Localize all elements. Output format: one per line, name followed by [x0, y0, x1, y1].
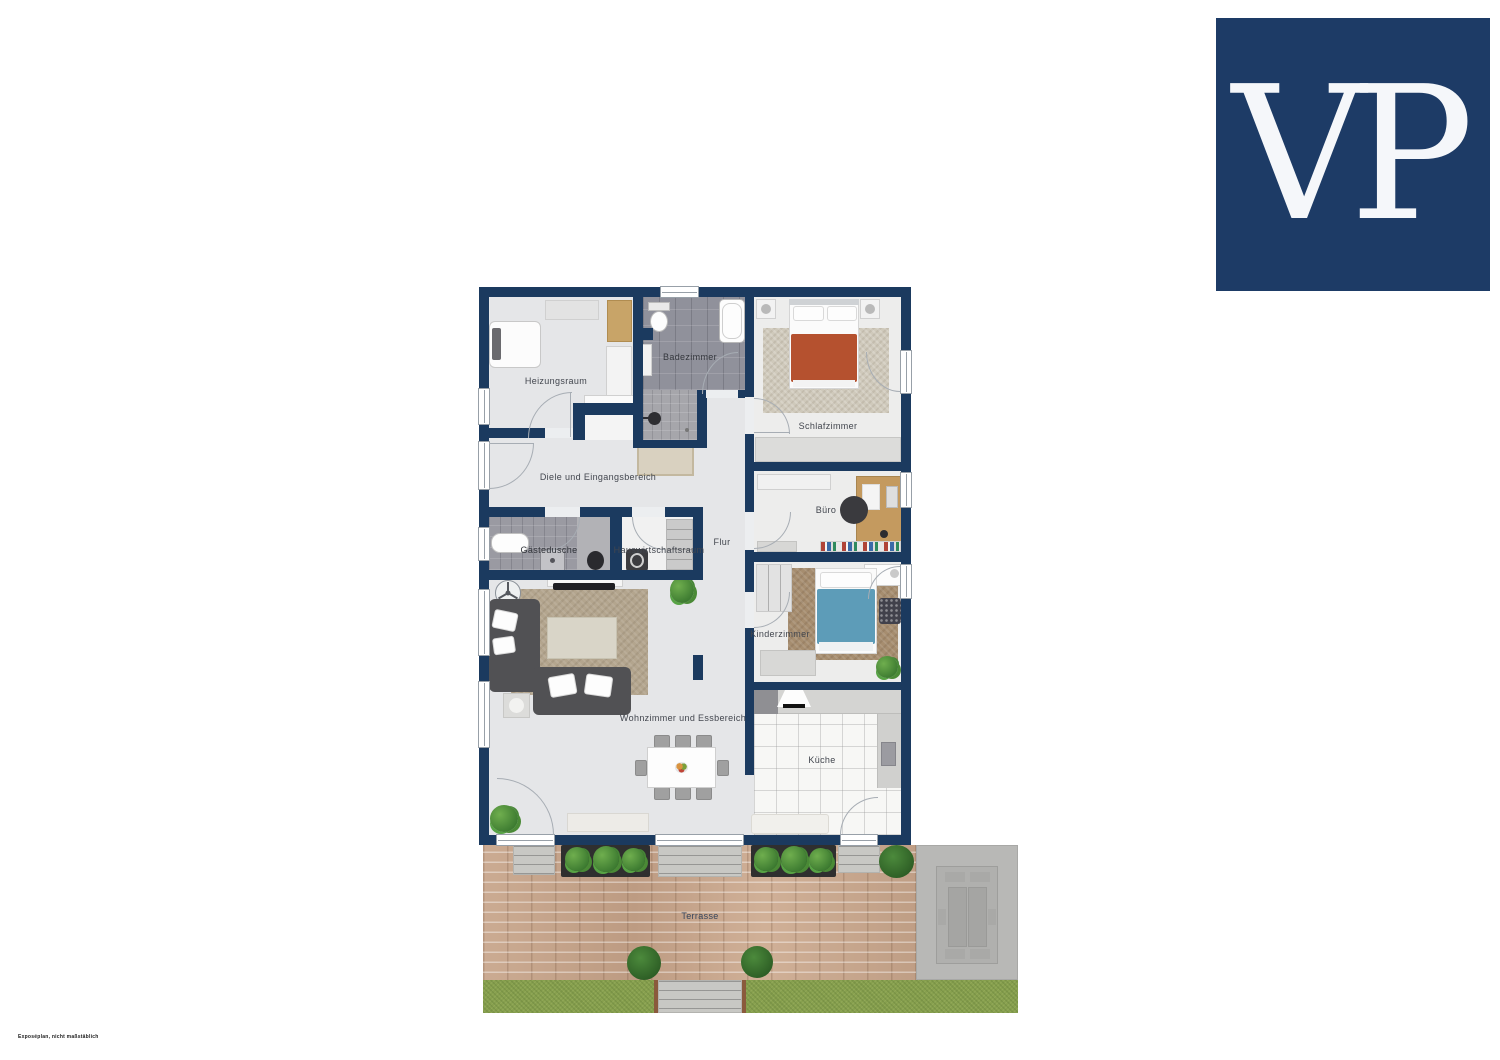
bush-icon [593, 846, 619, 872]
wall [643, 328, 653, 340]
shower-drain [685, 428, 689, 432]
wall [745, 682, 901, 690]
wall [745, 550, 754, 592]
steps-right [838, 845, 880, 873]
office-chair [840, 496, 868, 524]
disclaimer-text: Exposéplan, nicht maßstäblich [18, 1034, 99, 1040]
room-label-wohnzimmer: Wohnzimmer und Essbereich [620, 713, 746, 723]
terrace-door [496, 834, 555, 846]
wall [693, 655, 703, 680]
kids-bench [760, 650, 816, 676]
kids-bed-blanket [817, 589, 875, 644]
window [478, 589, 490, 656]
terrace-bush-icon [741, 946, 773, 978]
wall [745, 434, 754, 512]
kitchen-sink [881, 742, 896, 766]
cooktop-bar [783, 704, 805, 708]
door-leaf [570, 392, 571, 437]
door-opening [745, 397, 754, 434]
patio-chair [945, 872, 965, 882]
planter-left [561, 845, 650, 877]
room-label-kueche: Küche [808, 755, 835, 765]
window [900, 564, 912, 599]
bush-icon [754, 847, 778, 871]
wall [693, 507, 703, 580]
steps-left [513, 845, 555, 875]
guest-shower-drain [550, 558, 555, 563]
vp-logo: V P [1216, 18, 1490, 291]
wall [754, 552, 901, 562]
bookshelf [820, 541, 901, 552]
bed-headboard [789, 299, 859, 305]
room-label-kinderzimmer: Kinderzimmer [750, 629, 810, 639]
wall [479, 507, 545, 517]
desk-item [880, 530, 888, 538]
room-label-heizungsraum: Heizungsraum [525, 376, 587, 386]
sofa-pillow [492, 636, 516, 656]
bed-blanket-fold [793, 380, 855, 387]
toilet-tank [648, 302, 670, 311]
room-label-hauswirtschaftsraum: Hauswirtschaftsraum [614, 545, 705, 555]
kitchen-counter-dark [754, 690, 778, 714]
wall-exterior-left [479, 287, 489, 845]
pillow [827, 306, 857, 321]
plant-icon [670, 577, 694, 603]
floor-niche [585, 415, 633, 440]
logo-letter-p: P [1350, 62, 1474, 247]
window [478, 388, 490, 425]
floorplan-page: Heizungsraum Badezimmer Schlafzimmer Die… [0, 0, 1500, 1060]
door-leaf [754, 432, 790, 433]
kids-bed-foot [819, 642, 873, 651]
dining-chair [717, 760, 729, 776]
dining-chair [675, 787, 691, 800]
window-slider [655, 834, 744, 846]
room-label-terrasse: Terrasse [681, 911, 718, 921]
window [478, 527, 490, 561]
patio-chair [970, 872, 990, 882]
patio-chair [945, 949, 965, 959]
window [900, 350, 912, 394]
wall [633, 440, 707, 448]
patio-table [948, 887, 967, 947]
washing-machine-door [630, 553, 644, 568]
door-leaf [489, 443, 534, 444]
patio-table-set [936, 866, 998, 964]
garden-step-rail-right [742, 980, 746, 1013]
bush-icon [565, 847, 589, 871]
door-opening [545, 507, 580, 517]
logo-letter-v: V [1232, 62, 1366, 247]
door-opening [745, 512, 754, 550]
dining-chair [635, 760, 647, 776]
door-opening [632, 507, 665, 517]
room-label-schlafzimmer: Schlafzimmer [799, 421, 858, 431]
wall [633, 287, 643, 440]
door-opening [745, 592, 754, 628]
pillow [820, 572, 872, 588]
room-label-diele: Diele und Eingangsbereich [540, 472, 656, 482]
wall [745, 287, 754, 398]
wall [580, 507, 632, 517]
room-label-badezimmer: Badezimmer [663, 352, 717, 362]
terrace-bush-icon [627, 946, 661, 980]
lamp-icon [865, 304, 875, 314]
pillow [793, 306, 824, 321]
room-label-buero: Büro [816, 505, 836, 515]
bush-icon [809, 848, 832, 871]
bush-icon [622, 848, 645, 871]
sofa-pillow [584, 673, 614, 698]
bush-corner-icon [879, 845, 914, 878]
plant-icon [876, 656, 898, 678]
dining-chair [654, 787, 670, 800]
window [660, 286, 699, 298]
bed-blanket [791, 334, 857, 382]
garden-steps [658, 980, 742, 1013]
desk-monitor [886, 486, 898, 508]
patio-table [968, 887, 987, 947]
living-rug-inner [547, 617, 617, 659]
window [900, 472, 912, 508]
wall [479, 570, 703, 580]
closet [606, 346, 632, 398]
lamp-icon [761, 304, 771, 314]
patio-chair [938, 909, 946, 925]
kitchen-bench [751, 814, 829, 834]
stool [587, 551, 604, 570]
lawn [483, 980, 1018, 1013]
window [478, 681, 490, 748]
patio-chair [970, 949, 990, 959]
room-label-gaestedusche: Gästedusche [521, 545, 578, 555]
cabinet [545, 300, 599, 320]
boiler-panel [492, 328, 501, 360]
dining-chair [696, 787, 712, 800]
patio-chair [988, 909, 996, 925]
wall [573, 403, 633, 415]
lowboard [567, 813, 649, 832]
steps-middle [658, 845, 742, 877]
kitchen-terrace-door [840, 834, 878, 846]
wood-cabinet [607, 300, 632, 342]
planter-right [751, 845, 836, 877]
side-table-top [509, 698, 524, 713]
beanbag [879, 598, 901, 624]
office-cabinet [757, 474, 831, 490]
wardrobe [755, 437, 901, 462]
wall [745, 690, 754, 775]
sofa [533, 667, 631, 715]
bush-icon [781, 846, 807, 872]
fruit-bowl-icon [675, 762, 688, 773]
shower-arm [643, 417, 650, 419]
wall [754, 462, 901, 471]
room-label-flur: Flur [714, 537, 731, 547]
bathtub-inner [722, 303, 742, 339]
tv [553, 583, 615, 590]
